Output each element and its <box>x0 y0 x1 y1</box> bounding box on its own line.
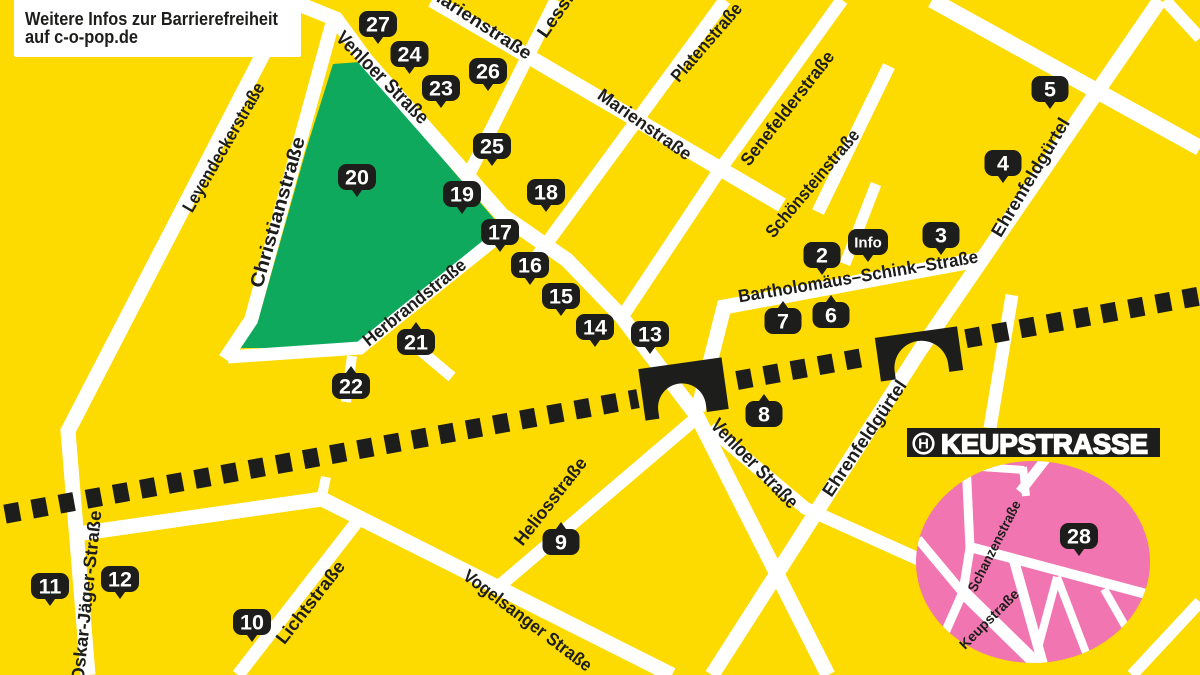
svg-text:20: 20 <box>345 166 369 190</box>
svg-text:28: 28 <box>1067 525 1091 549</box>
svg-text:Weitere Infos zur Barrierefrei: Weitere Infos zur Barrierefreiheit <box>25 9 278 29</box>
svg-text:12: 12 <box>108 568 132 592</box>
svg-text:15: 15 <box>549 285 573 309</box>
svg-text:16: 16 <box>518 254 542 278</box>
svg-text:23: 23 <box>429 77 453 101</box>
svg-text:22: 22 <box>339 375 363 399</box>
svg-text:6: 6 <box>825 304 837 328</box>
svg-text:3: 3 <box>935 224 947 248</box>
svg-text:14: 14 <box>583 316 607 340</box>
svg-text:auf c-o-pop.de: auf c-o-pop.de <box>25 27 138 47</box>
svg-text:10: 10 <box>240 611 264 635</box>
svg-text:2: 2 <box>816 244 828 268</box>
svg-text:5: 5 <box>1044 78 1056 102</box>
svg-text:Info: Info <box>854 235 882 252</box>
svg-text:19: 19 <box>450 183 474 207</box>
svg-text:27: 27 <box>366 13 390 37</box>
svg-text:KEUPSTRASSE: KEUPSTRASSE <box>941 429 1148 460</box>
svg-text:25: 25 <box>480 135 504 159</box>
svg-text:21: 21 <box>404 331 428 355</box>
svg-text:7: 7 <box>777 310 789 334</box>
svg-text:24: 24 <box>398 43 422 67</box>
svg-text:17: 17 <box>488 221 512 245</box>
svg-text:4: 4 <box>997 152 1009 176</box>
svg-text:13: 13 <box>638 323 662 347</box>
svg-text:9: 9 <box>555 531 567 555</box>
svg-text:11: 11 <box>39 575 62 599</box>
svg-text:8: 8 <box>758 403 770 427</box>
svg-text:26: 26 <box>476 60 500 84</box>
svg-text:18: 18 <box>534 181 558 205</box>
svg-text:H: H <box>918 436 929 453</box>
